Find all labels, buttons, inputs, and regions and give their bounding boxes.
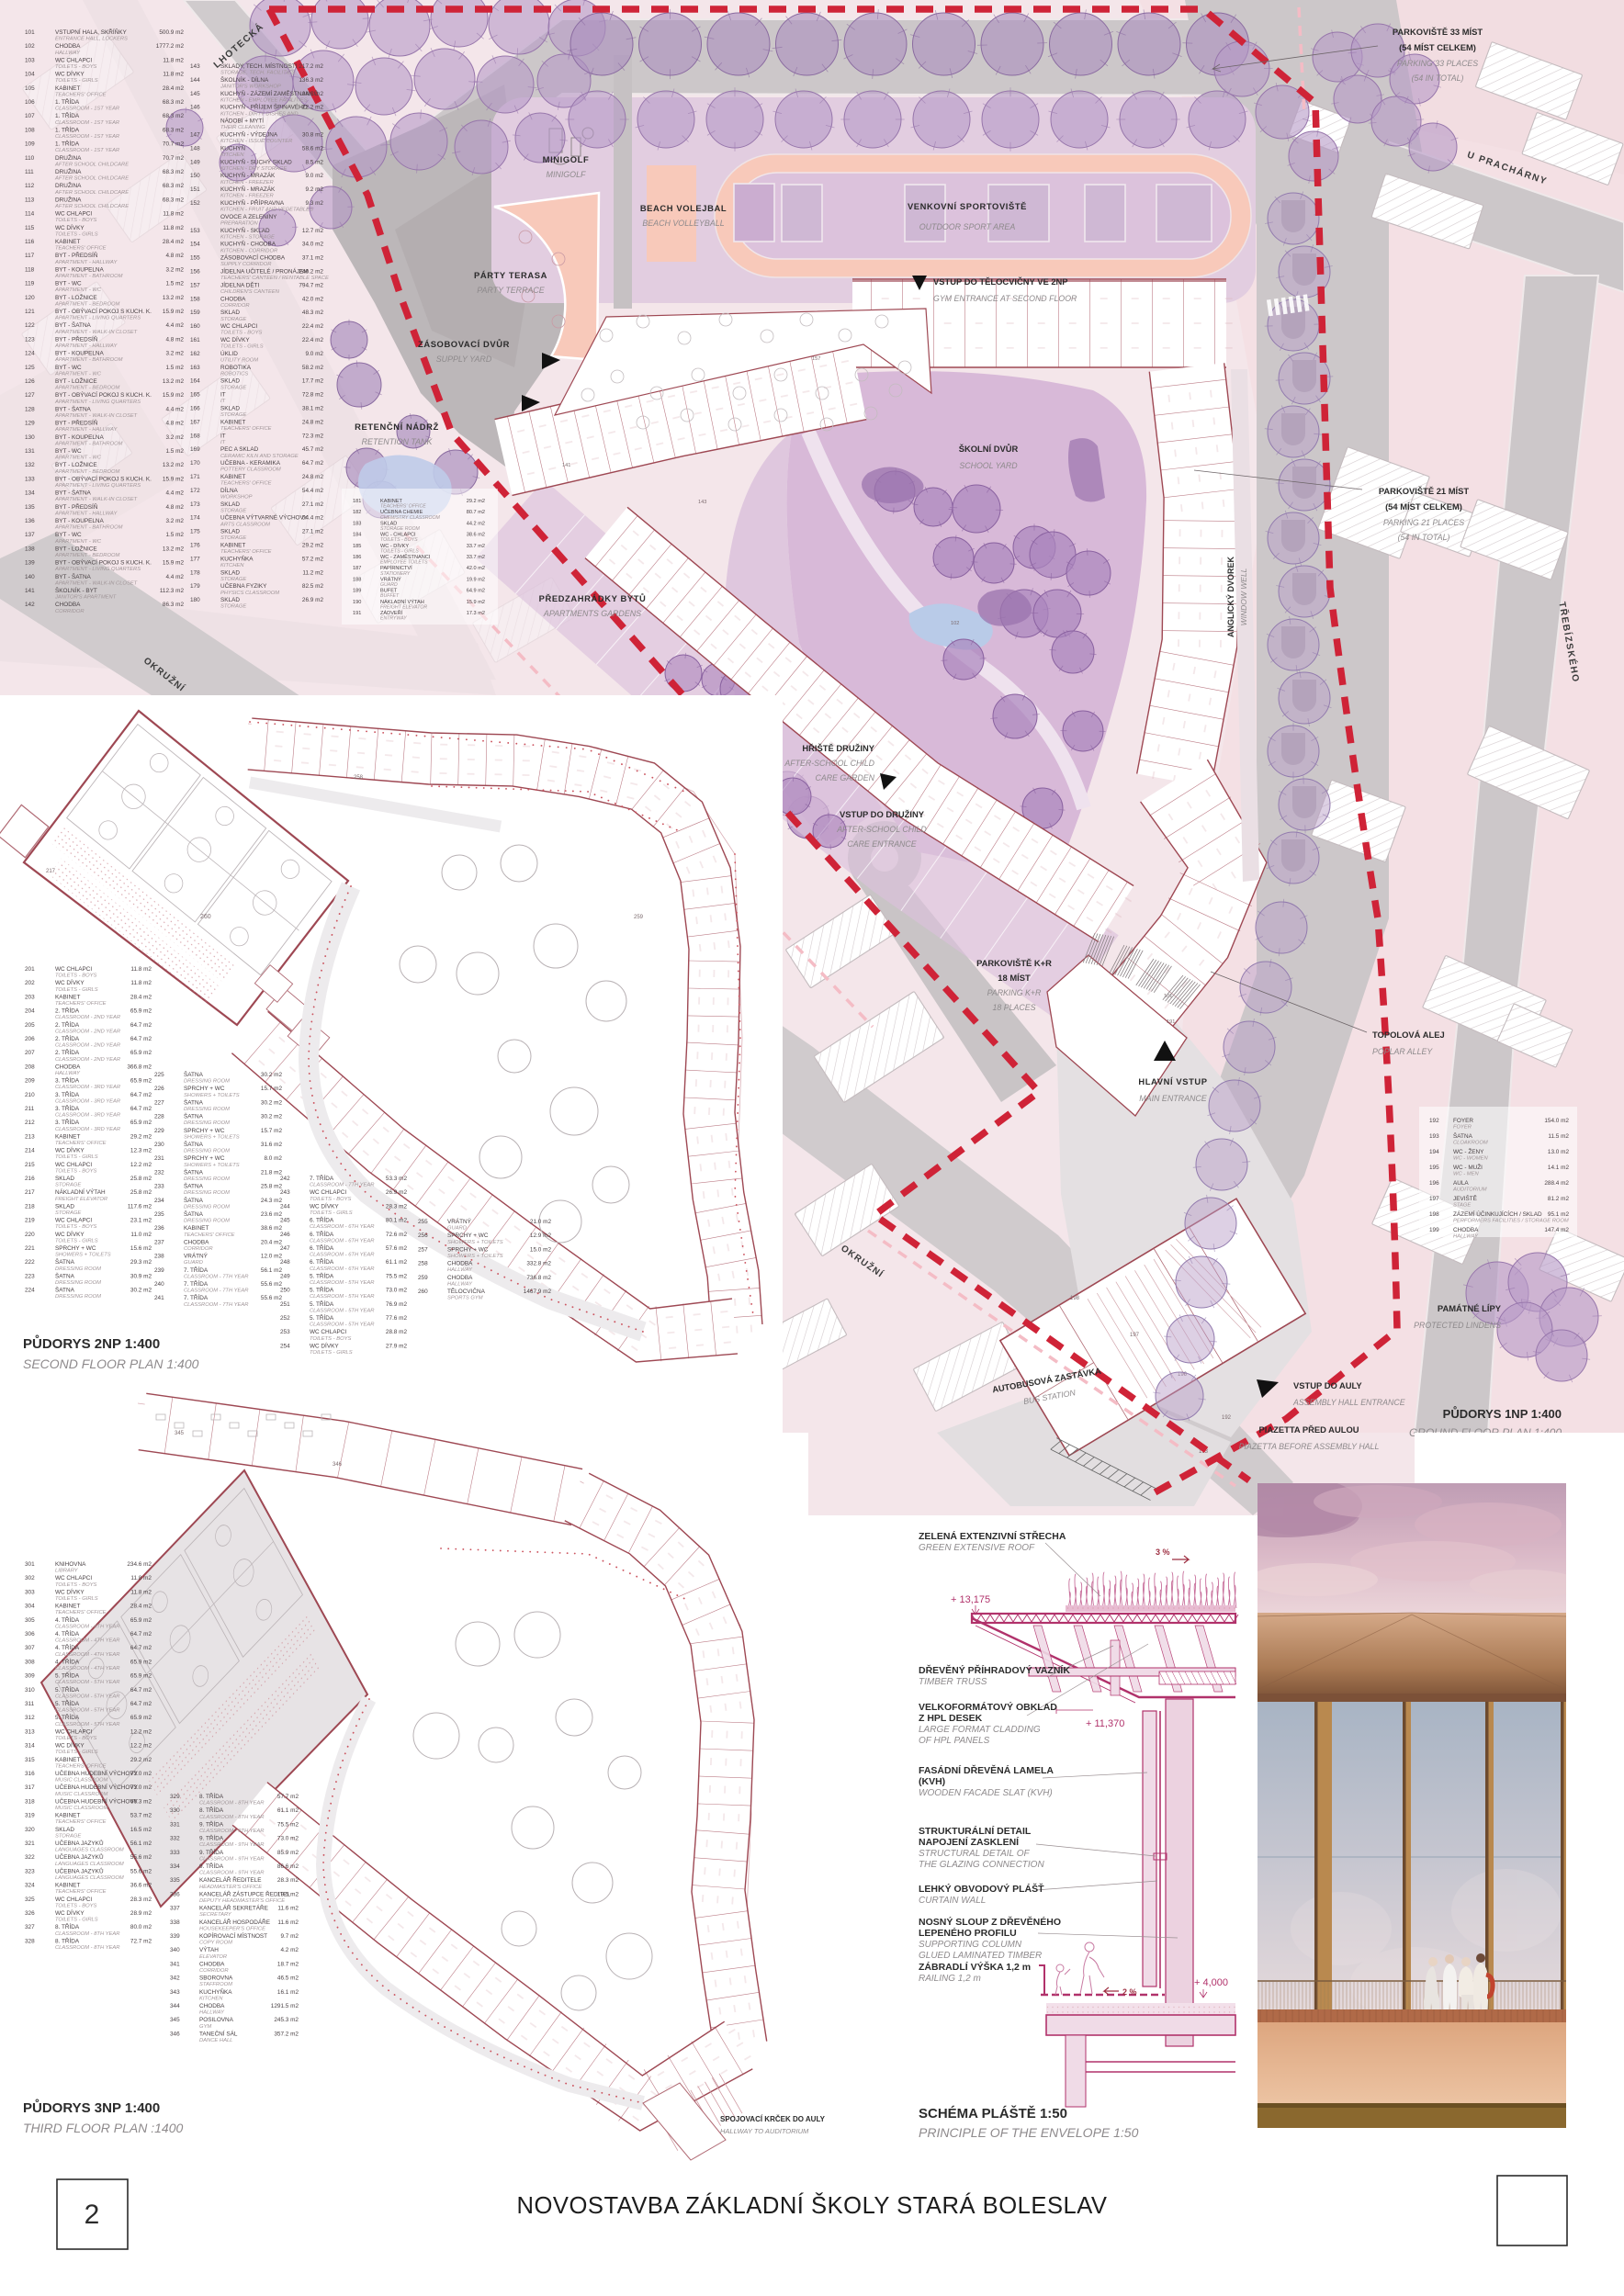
svg-text:TOILETS - GIRLS: TOILETS - GIRLS — [380, 548, 419, 554]
svg-text:140: 140 — [25, 574, 35, 580]
svg-text:CLASSROOM - 6TH YEAR: CLASSROOM - 6TH YEAR — [310, 1238, 375, 1244]
svg-text:TEACHERS' OFFICE: TEACHERS' OFFICE — [55, 92, 107, 97]
svg-text:206: 206 — [25, 1036, 35, 1042]
svg-text:DRESSING ROOM: DRESSING ROOM — [184, 1107, 230, 1112]
svg-text:CARE GARDEN: CARE GARDEN — [815, 773, 874, 782]
svg-text:217.2 m2: 217.2 m2 — [299, 63, 323, 70]
svg-text:153: 153 — [190, 228, 200, 234]
svg-text:228: 228 — [154, 1114, 164, 1120]
svg-text:VSTUP DO TĚLOCVIČNY VE 2NP: VSTUP DO TĚLOCVIČNY VE 2NP — [933, 276, 1068, 287]
svg-text:149: 149 — [190, 159, 200, 165]
svg-text:WC DÍVKY: WC DÍVKY — [55, 1146, 85, 1154]
svg-text:1467.9 m2: 1467.9 m2 — [524, 1289, 552, 1295]
svg-text:DRUŽINA: DRUŽINA — [55, 153, 82, 162]
svg-text:5. TŘÍDA: 5. TŘÍDA — [310, 1286, 334, 1294]
svg-text:329: 329 — [170, 1794, 180, 1800]
svg-text:203: 203 — [25, 994, 35, 1000]
svg-text:5. TŘÍDA: 5. TŘÍDA — [55, 1671, 80, 1680]
svg-text:WC CHLAPCI: WC CHLAPCI — [55, 1728, 92, 1735]
svg-text:CLASSROOM - 7TH YEAR: CLASSROOM - 7TH YEAR — [184, 1274, 249, 1279]
svg-text:46.5 m2: 46.5 m2 — [277, 1975, 299, 1982]
svg-text:OVOCE A ZELENINY: OVOCE A ZELENINY — [220, 214, 277, 220]
svg-text:64.7 m2: 64.7 m2 — [302, 460, 324, 467]
svg-text:FASÁDNÍ DŘEVĚNÁ LAMELA: FASÁDNÍ DŘEVĚNÁ LAMELA — [919, 1764, 1054, 1776]
svg-text:3. TŘÍDA: 3. TŘÍDA — [55, 1076, 80, 1085]
svg-text:19.5 m2: 19.5 m2 — [277, 1891, 299, 1897]
svg-text:CHODBA: CHODBA — [55, 1064, 81, 1070]
svg-text:LEHKÝ OBVODOVÝ PLÁŠŤ: LEHKÝ OBVODOVÝ PLÁŠŤ — [919, 1883, 1044, 1895]
svg-text:24.3 m2: 24.3 m2 — [261, 1198, 283, 1204]
svg-text:TEACHERS' OFFICE: TEACHERS' OFFICE — [55, 1889, 107, 1895]
svg-text:18 MÍST: 18 MÍST — [998, 973, 1031, 983]
svg-text:175: 175 — [190, 529, 200, 535]
svg-text:LIBRARY: LIBRARY — [55, 1569, 79, 1574]
svg-text:HALLWAY: HALLWAY — [447, 1281, 473, 1287]
svg-text:TEACHERS' OFFICE: TEACHERS' OFFICE — [220, 426, 272, 432]
svg-text:248: 248 — [280, 1259, 290, 1266]
svg-text:312: 312 — [25, 1715, 35, 1721]
svg-text:366.8 m2: 366.8 m2 — [127, 1064, 152, 1070]
svg-text:AULA: AULA — [1453, 1180, 1469, 1187]
svg-text:11.8 m2: 11.8 m2 — [130, 1575, 152, 1581]
svg-text:117: 117 — [25, 253, 35, 259]
svg-text:192: 192 — [1222, 1415, 1232, 1421]
svg-text:BYT - PŘEDSÍŇ: BYT - PŘEDSÍŇ — [55, 502, 98, 511]
svg-text:PARKOVIŠTĚ 33 MÍST: PARKOVIŠTĚ 33 MÍST — [1393, 27, 1483, 37]
svg-text:WC - MEN: WC - MEN — [1453, 1172, 1480, 1177]
svg-text:68.3 m2: 68.3 m2 — [163, 127, 185, 133]
svg-text:176: 176 — [190, 543, 200, 549]
svg-text:TOILETS - GIRLS: TOILETS - GIRLS — [220, 344, 264, 350]
svg-text:103: 103 — [25, 57, 35, 63]
svg-text:1.5 m2: 1.5 m2 — [165, 448, 184, 455]
svg-text:2. TŘÍDA: 2. TŘÍDA — [55, 1048, 80, 1056]
svg-text:148: 148 — [190, 145, 200, 152]
svg-text:217: 217 — [46, 869, 56, 874]
svg-text:WC DÍVKY: WC DÍVKY — [220, 335, 250, 343]
svg-text:288.4 m2: 288.4 m2 — [1544, 1180, 1569, 1187]
svg-text:13.2 m2: 13.2 m2 — [163, 546, 185, 552]
svg-text:KUCHYŇ - SUCHÝ SKLAD: KUCHYŇ - SUCHÝ SKLAD — [220, 157, 292, 165]
svg-text:APARTMENT - BEDROOM: APARTMENT - BEDROOM — [54, 386, 119, 391]
svg-text:BEACH VOLEJBAL: BEACH VOLEJBAL — [640, 203, 727, 213]
svg-text:TOILETS - GIRLS: TOILETS - GIRLS — [55, 78, 98, 84]
svg-text:57.6 m2: 57.6 m2 — [386, 1245, 408, 1252]
svg-text:ŠATNA: ŠATNA — [55, 1286, 75, 1294]
svg-text:WC DÍVKY: WC DÍVKY — [55, 1908, 85, 1917]
svg-text:305: 305 — [25, 1617, 35, 1624]
svg-text:13.2 m2: 13.2 m2 — [163, 462, 185, 468]
svg-text:9.0 m2: 9.0 m2 — [305, 173, 323, 179]
svg-text:TEACHERS' CANTEEN / RENTABLE S: TEACHERS' CANTEEN / RENTABLE SPACE — [220, 276, 329, 281]
svg-text:165: 165 — [190, 392, 200, 399]
svg-text:64.7 m2: 64.7 m2 — [130, 1106, 152, 1112]
svg-text:CLASSROOM - 9TH YEAR: CLASSROOM - 9TH YEAR — [199, 1842, 265, 1848]
svg-text:ÚKLID: ÚKLID — [220, 349, 238, 357]
svg-text:STORAGE: STORAGE — [55, 1183, 81, 1188]
svg-text:8. TŘÍDA: 8. TŘÍDA — [55, 1922, 80, 1930]
svg-text:53.7 m2: 53.7 m2 — [130, 1813, 152, 1819]
svg-text:4.8 m2: 4.8 m2 — [165, 421, 184, 427]
svg-text:ROBOTICS: ROBOTICS — [220, 371, 248, 377]
svg-text:TOILETS - BOYS: TOILETS - BOYS — [55, 1903, 96, 1908]
svg-text:(54 IN TOTAL): (54 IN TOTAL) — [1398, 533, 1450, 542]
svg-text:65.9 m2: 65.9 m2 — [130, 1008, 152, 1015]
svg-text:+ 4,000: + 4,000 — [1194, 1977, 1228, 1988]
svg-text:POPLAR ALLEY: POPLAR ALLEY — [1372, 1047, 1433, 1056]
svg-text:11.8 m2: 11.8 m2 — [163, 225, 184, 231]
svg-text:ŠKOLNÍ DVŮR: ŠKOLNÍ DVŮR — [959, 444, 1019, 454]
svg-text:PARKING 21 PLACES: PARKING 21 PLACES — [1383, 518, 1464, 527]
svg-text:326: 326 — [25, 1910, 35, 1917]
svg-text:DRESSING ROOM: DRESSING ROOM — [184, 1219, 230, 1224]
svg-text:IT: IT — [220, 392, 226, 399]
svg-text:315: 315 — [25, 1757, 35, 1763]
svg-text:95.1 m2: 95.1 m2 — [1548, 1211, 1570, 1218]
svg-text:65.9 m2: 65.9 m2 — [130, 1617, 152, 1624]
svg-text:SHOWERS + TOILETS: SHOWERS + TOILETS — [447, 1240, 503, 1245]
svg-text:BYT - LOŽNICE: BYT - LOŽNICE — [55, 377, 97, 385]
svg-text:WC DÍVKY: WC DÍVKY — [55, 223, 85, 231]
svg-text:HALLWAY: HALLWAY — [447, 1267, 473, 1273]
svg-text:9.2 m2: 9.2 m2 — [305, 186, 323, 193]
svg-text:17.7 m2: 17.7 m2 — [302, 378, 324, 385]
svg-text:CLASSROOM - 7TH YEAR: CLASSROOM - 7TH YEAR — [184, 1289, 249, 1294]
svg-text:KITCHEN: KITCHEN — [220, 563, 244, 568]
svg-text:303: 303 — [25, 1589, 35, 1595]
svg-text:334: 334 — [170, 1863, 180, 1870]
svg-text:CLASSROOM - 8TH YEAR: CLASSROOM - 8TH YEAR — [55, 1931, 120, 1937]
svg-text:TOILETS - GIRLS: TOILETS - GIRLS — [310, 1210, 353, 1216]
svg-text:11.6 m2: 11.6 m2 — [277, 1906, 299, 1912]
svg-text:TOILETS - BOYS: TOILETS - BOYS — [55, 974, 96, 979]
svg-text:ZÁSOBOVACÍ DVŮR: ZÁSOBOVACÍ DVŮR — [418, 339, 510, 349]
svg-text:736.8 m2: 736.8 m2 — [526, 1275, 551, 1281]
svg-text:321: 321 — [25, 1840, 35, 1847]
svg-text:166: 166 — [190, 406, 200, 412]
svg-text:37.1 m2: 37.1 m2 — [302, 255, 324, 262]
svg-text:241: 241 — [154, 1295, 164, 1301]
svg-text:240: 240 — [154, 1281, 164, 1288]
svg-text:APARTMENT - HALLWAY: APARTMENT - HALLWAY — [54, 511, 118, 516]
svg-text:ŠATNA: ŠATNA — [55, 1271, 75, 1279]
svg-text:SPRCHY + WC: SPRCHY + WC — [184, 1155, 225, 1162]
svg-text:PIAZETTA PŘED AULOU: PIAZETTA PŘED AULOU — [1258, 1424, 1359, 1435]
svg-text:TOILETS - BOYS: TOILETS - BOYS — [310, 1197, 351, 1202]
svg-text:34.0 m2: 34.0 m2 — [302, 242, 324, 248]
svg-text:PARKOVIŠTĚ K+R: PARKOVIŠTĚ K+R — [976, 958, 1052, 968]
svg-text:246: 246 — [280, 1232, 290, 1238]
svg-text:28.4 m2: 28.4 m2 — [130, 1604, 152, 1610]
svg-text:CLASSROOM - 8TH YEAR: CLASSROOM - 8TH YEAR — [55, 1945, 120, 1951]
svg-text:COPY ROOM: COPY ROOM — [199, 1941, 232, 1946]
svg-text:NÁDOBÍ + MYTÍ: NÁDOBÍ + MYTÍ — [220, 117, 264, 125]
svg-text:328: 328 — [25, 1938, 35, 1944]
svg-text:VRÁTNÝ: VRÁTNÝ — [184, 1252, 209, 1260]
svg-text:64.7 m2: 64.7 m2 — [130, 1631, 152, 1638]
svg-text:STAGE: STAGE — [1453, 1203, 1471, 1209]
svg-text:KOPÍROVACÍ MÍSTNOST: KOPÍROVACÍ MÍSTNOST — [199, 1931, 267, 1940]
svg-text:7. TŘÍDA: 7. TŘÍDA — [184, 1293, 209, 1301]
svg-text:DRESSING ROOM: DRESSING ROOM — [55, 1266, 101, 1272]
svg-text:AFTER-SCHOOL CHILD: AFTER-SCHOOL CHILD — [784, 759, 874, 768]
svg-text:NAPOJENÍ ZASKLENÍ: NAPOJENÍ ZASKLENÍ — [919, 1836, 1020, 1848]
svg-text:155: 155 — [190, 255, 200, 262]
svg-text:327: 327 — [25, 1924, 35, 1930]
svg-text:211: 211 — [25, 1106, 35, 1112]
svg-text:144: 144 — [190, 77, 200, 84]
svg-text:KUCHYŇ - MRAZÁK: KUCHYŇ - MRAZÁK — [220, 171, 276, 179]
svg-text:112.3 m2: 112.3 m2 — [160, 588, 185, 594]
svg-text:65.9 m2: 65.9 m2 — [130, 1673, 152, 1680]
svg-text:SPRCHY + WC: SPRCHY + WC — [55, 1245, 96, 1252]
svg-text:KABINET: KABINET — [55, 994, 80, 1000]
svg-text:STORAGE: STORAGE — [220, 317, 246, 322]
svg-text:220: 220 — [25, 1232, 35, 1238]
svg-text:6. TŘÍDA: 6. TŘÍDA — [310, 1244, 334, 1252]
svg-text:242: 242 — [280, 1176, 290, 1182]
svg-text:29.2 m2: 29.2 m2 — [130, 1757, 152, 1763]
svg-text:WC CHLAPCI: WC CHLAPCI — [55, 1162, 92, 1168]
svg-text:BYT - KOUPELNA: BYT - KOUPELNA — [55, 518, 105, 524]
svg-text:CERAMIC KILN AND STORAGE: CERAMIC KILN AND STORAGE — [220, 454, 299, 459]
svg-text:11.0 m2: 11.0 m2 — [130, 1232, 152, 1238]
svg-text:132: 132 — [25, 462, 35, 468]
svg-text:29.2 m2: 29.2 m2 — [302, 543, 324, 549]
svg-text:135: 135 — [25, 504, 35, 511]
svg-text:BYT - ŠATNA: BYT - ŠATNA — [55, 572, 92, 580]
svg-text:42.0 m2: 42.0 m2 — [302, 296, 324, 302]
svg-text:332: 332 — [170, 1836, 180, 1842]
svg-text:125: 125 — [25, 365, 35, 371]
svg-text:WC - MUŽI: WC - MUŽI — [1453, 1163, 1483, 1171]
svg-text:ZÁSOBOVACÍ CHODBA: ZÁSOBOVACÍ CHODBA — [220, 253, 286, 262]
svg-text:CHODBA: CHODBA — [199, 1961, 225, 1967]
svg-text:4.4 m2: 4.4 m2 — [165, 406, 184, 412]
svg-text:DÍLNA: DÍLNA — [220, 486, 239, 494]
svg-text:120: 120 — [25, 295, 35, 301]
svg-text:BYT - KOUPELNA: BYT - KOUPELNA — [55, 434, 105, 441]
svg-text:TEACHERS' OFFICE: TEACHERS' OFFICE — [55, 1819, 107, 1825]
svg-text:STAFFROOM: STAFFROOM — [199, 1982, 232, 1987]
svg-text:ŠATNA: ŠATNA — [184, 1140, 204, 1148]
svg-text:NOVOSTAVBA ZÁKLADNÍ ŠKOLY STAR: NOVOSTAVBA ZÁKLADNÍ ŠKOLY STARÁ BOLESLAV — [517, 2192, 1108, 2219]
svg-text:TEACHERS' OFFICE: TEACHERS' OFFICE — [55, 1610, 107, 1615]
svg-text:KUCHYŇ - MRAZÁK: KUCHYŇ - MRAZÁK — [220, 185, 276, 193]
svg-text:53.3 m2: 53.3 m2 — [386, 1176, 408, 1182]
svg-text:113: 113 — [25, 197, 35, 203]
svg-text:PŮDORYS 1NP 1:400: PŮDORYS 1NP 1:400 — [1443, 1406, 1562, 1421]
svg-text:6. TŘÍDA: 6. TŘÍDA — [310, 1216, 334, 1224]
svg-text:ŠATNA: ŠATNA — [184, 1196, 204, 1204]
svg-text:PARKOVIŠTĚ 21 MÍST: PARKOVIŠTĚ 21 MÍST — [1379, 486, 1470, 496]
svg-text:12.2 m2: 12.2 m2 — [130, 1728, 152, 1735]
svg-text:MINIGOLF: MINIGOLF — [543, 154, 590, 164]
svg-text:185: 185 — [353, 544, 361, 549]
svg-text:CLASSROOM - 9TH YEAR: CLASSROOM - 9TH YEAR — [199, 1829, 265, 1834]
svg-text:KITCHEN: KITCHEN — [199, 1996, 223, 2001]
svg-text:65.9 m2: 65.9 m2 — [130, 1715, 152, 1721]
svg-text:STORAGE: STORAGE — [220, 577, 246, 582]
svg-text:188: 188 — [353, 577, 361, 582]
svg-text:65.9 m2: 65.9 m2 — [130, 1659, 152, 1665]
svg-text:72.8 m2: 72.8 m2 — [302, 392, 324, 399]
svg-text:TOILETS - BOYS: TOILETS - BOYS — [55, 1168, 96, 1174]
svg-text:DRESSING ROOM: DRESSING ROOM — [184, 1120, 230, 1126]
svg-text:14.1 m2: 14.1 m2 — [1548, 1165, 1570, 1171]
svg-text:210: 210 — [25, 1092, 35, 1098]
svg-text:172: 172 — [190, 488, 200, 494]
svg-text:55.6 m2: 55.6 m2 — [130, 1854, 152, 1861]
svg-text:CLASSROOM - 1ST YEAR: CLASSROOM - 1ST YEAR — [55, 134, 120, 140]
svg-text:4.4 m2: 4.4 m2 — [165, 490, 184, 497]
svg-text:164: 164 — [190, 378, 200, 385]
svg-text:9. TŘÍDA: 9. TŘÍDA — [199, 1862, 224, 1870]
svg-text:STORAGE: STORAGE — [55, 1210, 81, 1216]
svg-text:KABINET: KABINET — [55, 1813, 80, 1819]
svg-text:SPORTS GYM: SPORTS GYM — [447, 1296, 483, 1301]
svg-text:AFTER SCHOOL CHILDCARE: AFTER SCHOOL CHILDCARE — [54, 204, 129, 209]
svg-text:332.8 m2: 332.8 m2 — [526, 1261, 551, 1267]
svg-text:252: 252 — [280, 1315, 290, 1322]
svg-text:JÍDELNA DĚTI: JÍDELNA DĚTI — [220, 280, 259, 288]
svg-text:STORAGE: STORAGE — [55, 1833, 81, 1839]
svg-text:ŠATNA: ŠATNA — [184, 1182, 204, 1190]
svg-text:PŮDORYS 3NP 1:400: PŮDORYS 3NP 1:400 — [23, 2099, 160, 2116]
svg-text:UČEBNA HUDEBNÍ VÝCHOVY: UČEBNA HUDEBNÍ VÝCHOVY — [55, 1796, 139, 1805]
svg-text:4.8 m2: 4.8 m2 — [165, 504, 184, 511]
svg-text:127: 127 — [25, 392, 35, 399]
svg-text:TOILETS - BOYS: TOILETS - BOYS — [310, 1336, 351, 1342]
svg-text:APARTMENT - WALK-IN CLOSET: APARTMENT - WALK-IN CLOSET — [54, 497, 138, 502]
svg-text:ROBOTIKA: ROBOTIKA — [220, 365, 252, 371]
svg-text:BYT - ŠATNA: BYT - ŠATNA — [55, 321, 92, 329]
svg-text:CORRIDOR: CORRIDOR — [55, 609, 85, 614]
svg-text:346: 346 — [170, 2031, 180, 2037]
svg-text:73.0 m2: 73.0 m2 — [130, 1784, 152, 1791]
svg-text:CHODBA: CHODBA — [55, 602, 81, 608]
svg-text:162: 162 — [190, 351, 200, 357]
svg-text:3. TŘÍDA: 3. TŘÍDA — [55, 1118, 80, 1126]
svg-text:WC CHLAPCI: WC CHLAPCI — [55, 1218, 92, 1224]
svg-text:CLASSROOM - 5TH YEAR: CLASSROOM - 5TH YEAR — [55, 1708, 120, 1714]
svg-text:MINIGOLF: MINIGOLF — [547, 170, 586, 179]
svg-text:CLASSROOM - 6TH YEAR: CLASSROOM - 6TH YEAR — [310, 1266, 375, 1272]
svg-text:CLASSROOM - 9TH YEAR: CLASSROOM - 9TH YEAR — [199, 1856, 265, 1862]
svg-text:182: 182 — [353, 510, 361, 515]
svg-text:129: 129 — [25, 421, 35, 427]
svg-text:183: 183 — [353, 521, 361, 526]
svg-text:POSILOVNA: POSILOVNA — [199, 2017, 234, 2023]
svg-text:116: 116 — [25, 239, 35, 245]
svg-text:68.3 m2: 68.3 m2 — [163, 99, 185, 106]
svg-text:TEACHERS' OFFICE: TEACHERS' OFFICE — [220, 481, 272, 487]
svg-text:229: 229 — [154, 1128, 164, 1134]
svg-text:SKLAD: SKLAD — [55, 1827, 74, 1833]
svg-text:ŠATNA: ŠATNA — [184, 1167, 204, 1176]
svg-text:PHYSICS CLASSROOM: PHYSICS CLASSROOM — [220, 591, 279, 596]
svg-text:PŘEDZAHRÁDKY BYTŮ: PŘEDZAHRÁDKY BYTŮ — [539, 593, 647, 603]
svg-text:BYT - LOŽNICE: BYT - LOŽNICE — [55, 293, 97, 301]
svg-text:36.6 m2: 36.6 m2 — [130, 1883, 152, 1889]
svg-text:82.5 m2: 82.5 m2 — [302, 583, 324, 590]
svg-text:PŮDORYS 2NP 1:400: PŮDORYS 2NP 1:400 — [23, 1334, 160, 1352]
svg-text:UČEBNA HUDEBNÍ VÝCHOVY: UČEBNA HUDEBNÍ VÝCHOVY — [55, 1769, 139, 1777]
svg-text:38.1 m2: 38.1 m2 — [302, 406, 324, 412]
svg-text:114: 114 — [25, 211, 35, 218]
svg-text:25.8 m2: 25.8 m2 — [130, 1189, 152, 1196]
svg-text:SHOWERS + TOILETS: SHOWERS + TOILETS — [447, 1254, 503, 1259]
svg-text:26.9 m2: 26.9 m2 — [386, 1189, 408, 1196]
svg-text:KABINET: KABINET — [55, 1133, 80, 1140]
svg-text:208: 208 — [25, 1064, 35, 1070]
svg-text:150: 150 — [190, 173, 200, 179]
svg-text:5. TŘÍDA: 5. TŘÍDA — [310, 1271, 334, 1279]
svg-text:BYT - WC: BYT - WC — [55, 365, 82, 371]
svg-text:VSTUP DO AULY: VSTUP DO AULY — [1293, 1380, 1362, 1390]
svg-text:2: 2 — [85, 2200, 100, 2230]
svg-text:HLAVNÍ VSTUP: HLAVNÍ VSTUP — [1138, 1076, 1207, 1086]
svg-text:HOUSEKEEPER'S OFFICE: HOUSEKEEPER'S OFFICE — [199, 1926, 265, 1931]
svg-text:64.9 m2: 64.9 m2 — [467, 589, 485, 594]
svg-text:APARTMENTS GARDENS: APARTMENTS GARDENS — [543, 609, 641, 618]
svg-text:APARTMENT - BATHROOM: APARTMENT - BATHROOM — [54, 274, 123, 279]
svg-text:500.9 m2: 500.9 m2 — [159, 29, 184, 36]
svg-text:68.3 m2: 68.3 m2 — [163, 169, 185, 175]
svg-text:TOILETS - GIRLS: TOILETS - GIRLS — [310, 1350, 353, 1356]
svg-text:29.3 m2: 29.3 m2 — [130, 1259, 152, 1266]
svg-text:TOILETS - GIRLS: TOILETS - GIRLS — [55, 1918, 98, 1923]
svg-text:64.7 m2: 64.7 m2 — [130, 1645, 152, 1651]
svg-text:147.4 m2: 147.4 m2 — [1544, 1227, 1569, 1233]
svg-text:169: 169 — [190, 446, 200, 453]
svg-text:65.9 m2: 65.9 m2 — [130, 1120, 152, 1126]
svg-text:ŠKOLNÍK - DÍLNA: ŠKOLNÍK - DÍLNA — [220, 75, 269, 84]
svg-text:255: 255 — [418, 1219, 428, 1225]
svg-text:141: 141 — [562, 463, 570, 468]
svg-text:TOILETS - BOYS: TOILETS - BOYS — [380, 537, 418, 543]
svg-text:CLASSROOM - 4TH YEAR: CLASSROOM - 4TH YEAR — [55, 1624, 120, 1629]
svg-text:CLASSROOM - 2ND YEAR: CLASSROOM - 2ND YEAR — [55, 1043, 121, 1049]
svg-text:134: 134 — [25, 490, 35, 497]
svg-text:JEVIŠTĚ: JEVIŠTĚ — [1453, 1194, 1477, 1202]
svg-text:ZÁBRADLÍ VÝŠKA 1,2 m: ZÁBRADLÍ VÝŠKA 1,2 m — [919, 1961, 1031, 1973]
svg-text:186: 186 — [353, 555, 361, 560]
svg-text:4. TŘÍDA: 4. TŘÍDA — [55, 1629, 80, 1638]
svg-text:24.8 m2: 24.8 m2 — [302, 474, 324, 480]
svg-text:JÍDELNA UČITELÉ / PRONÁJEM: JÍDELNA UČITELÉ / PRONÁJEM — [220, 267, 309, 276]
svg-text:CLASSROOM - 5TH YEAR: CLASSROOM - 5TH YEAR — [310, 1280, 375, 1286]
svg-text:86.3 m2: 86.3 m2 — [163, 602, 185, 608]
svg-text:187: 187 — [353, 566, 361, 571]
svg-text:118: 118 — [25, 266, 35, 273]
svg-text:LANGUAGES CLASSROOM: LANGUAGES CLASSROOM — [55, 1875, 124, 1881]
svg-text:81.2 m2: 81.2 m2 — [1548, 1196, 1570, 1202]
svg-text:225: 225 — [154, 1072, 164, 1078]
svg-text:163: 163 — [190, 365, 200, 371]
svg-text:ELEVATOR: ELEVATOR — [199, 1954, 228, 1960]
svg-text:KABINET: KABINET — [55, 1883, 80, 1889]
svg-text:9.0 m2: 9.0 m2 — [305, 351, 323, 357]
svg-text:SPRCHY + WC: SPRCHY + WC — [447, 1246, 489, 1253]
svg-text:123: 123 — [25, 336, 35, 343]
svg-text:WC CHLAPCI: WC CHLAPCI — [310, 1189, 346, 1196]
svg-text:LEPENÉHO PROFILU: LEPENÉHO PROFILU — [919, 1927, 1017, 1939]
svg-text:304: 304 — [25, 1604, 35, 1610]
svg-text:158: 158 — [190, 296, 200, 302]
svg-text:215: 215 — [25, 1162, 35, 1168]
svg-text:202: 202 — [25, 980, 35, 986]
